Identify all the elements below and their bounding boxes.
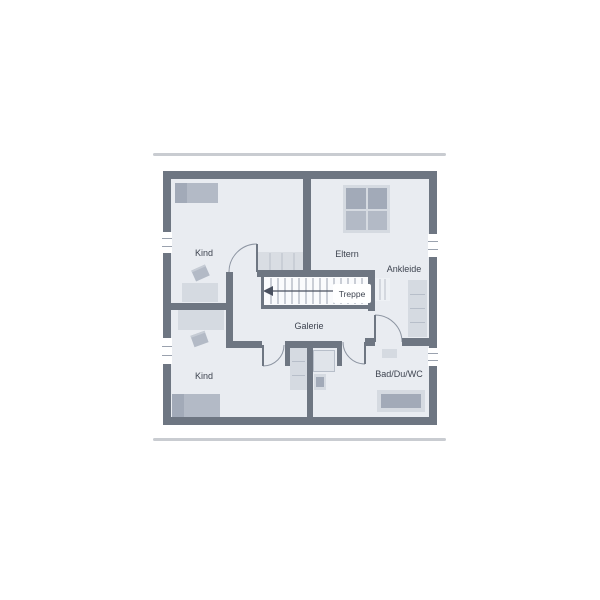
wall-outer-bottom bbox=[163, 417, 437, 425]
room-label-treppe: Treppe bbox=[339, 289, 366, 299]
wall-ankleide-bad bbox=[402, 338, 429, 346]
stair-railing bbox=[261, 305, 375, 309]
wall-kind-divider bbox=[171, 303, 226, 310]
room-label-eltern: Eltern bbox=[335, 249, 359, 259]
door-arc bbox=[229, 244, 257, 272]
room-label-kind-top: Kind bbox=[195, 248, 213, 258]
wall-bad-central bbox=[307, 341, 313, 417]
wall-closet-top bbox=[285, 341, 342, 348]
door-arc bbox=[375, 315, 402, 342]
wall-landing-left bbox=[226, 272, 233, 348]
door-arc bbox=[343, 342, 365, 364]
wall-closet-stub-right bbox=[337, 341, 342, 366]
window bbox=[162, 232, 172, 253]
room-label-bad: Bad/Du/WC bbox=[375, 369, 423, 379]
room-label-galerie: Galerie bbox=[294, 321, 323, 331]
wall-outer-left bbox=[163, 171, 171, 425]
window bbox=[162, 338, 172, 364]
stair-left-edge bbox=[261, 277, 264, 305]
wall-kind-eltern bbox=[303, 179, 311, 270]
wall-outer-right bbox=[429, 171, 437, 425]
window bbox=[428, 348, 438, 366]
wall-closet-stub-left bbox=[285, 341, 290, 366]
room-label-kind-bottom: Kind bbox=[195, 371, 213, 381]
floor-plan-canvas: Kind Eltern Ankleide Treppe Galerie Kind… bbox=[0, 0, 600, 600]
wall-bad-pier bbox=[365, 338, 375, 346]
wall-outer-top bbox=[163, 171, 437, 179]
window bbox=[428, 234, 438, 257]
wall-stair-top bbox=[257, 270, 375, 277]
room-label-ankleide: Ankleide bbox=[387, 264, 422, 274]
wall-kind-bottom-top bbox=[226, 341, 262, 348]
door-arc bbox=[263, 345, 284, 366]
plan-linework bbox=[0, 0, 600, 600]
